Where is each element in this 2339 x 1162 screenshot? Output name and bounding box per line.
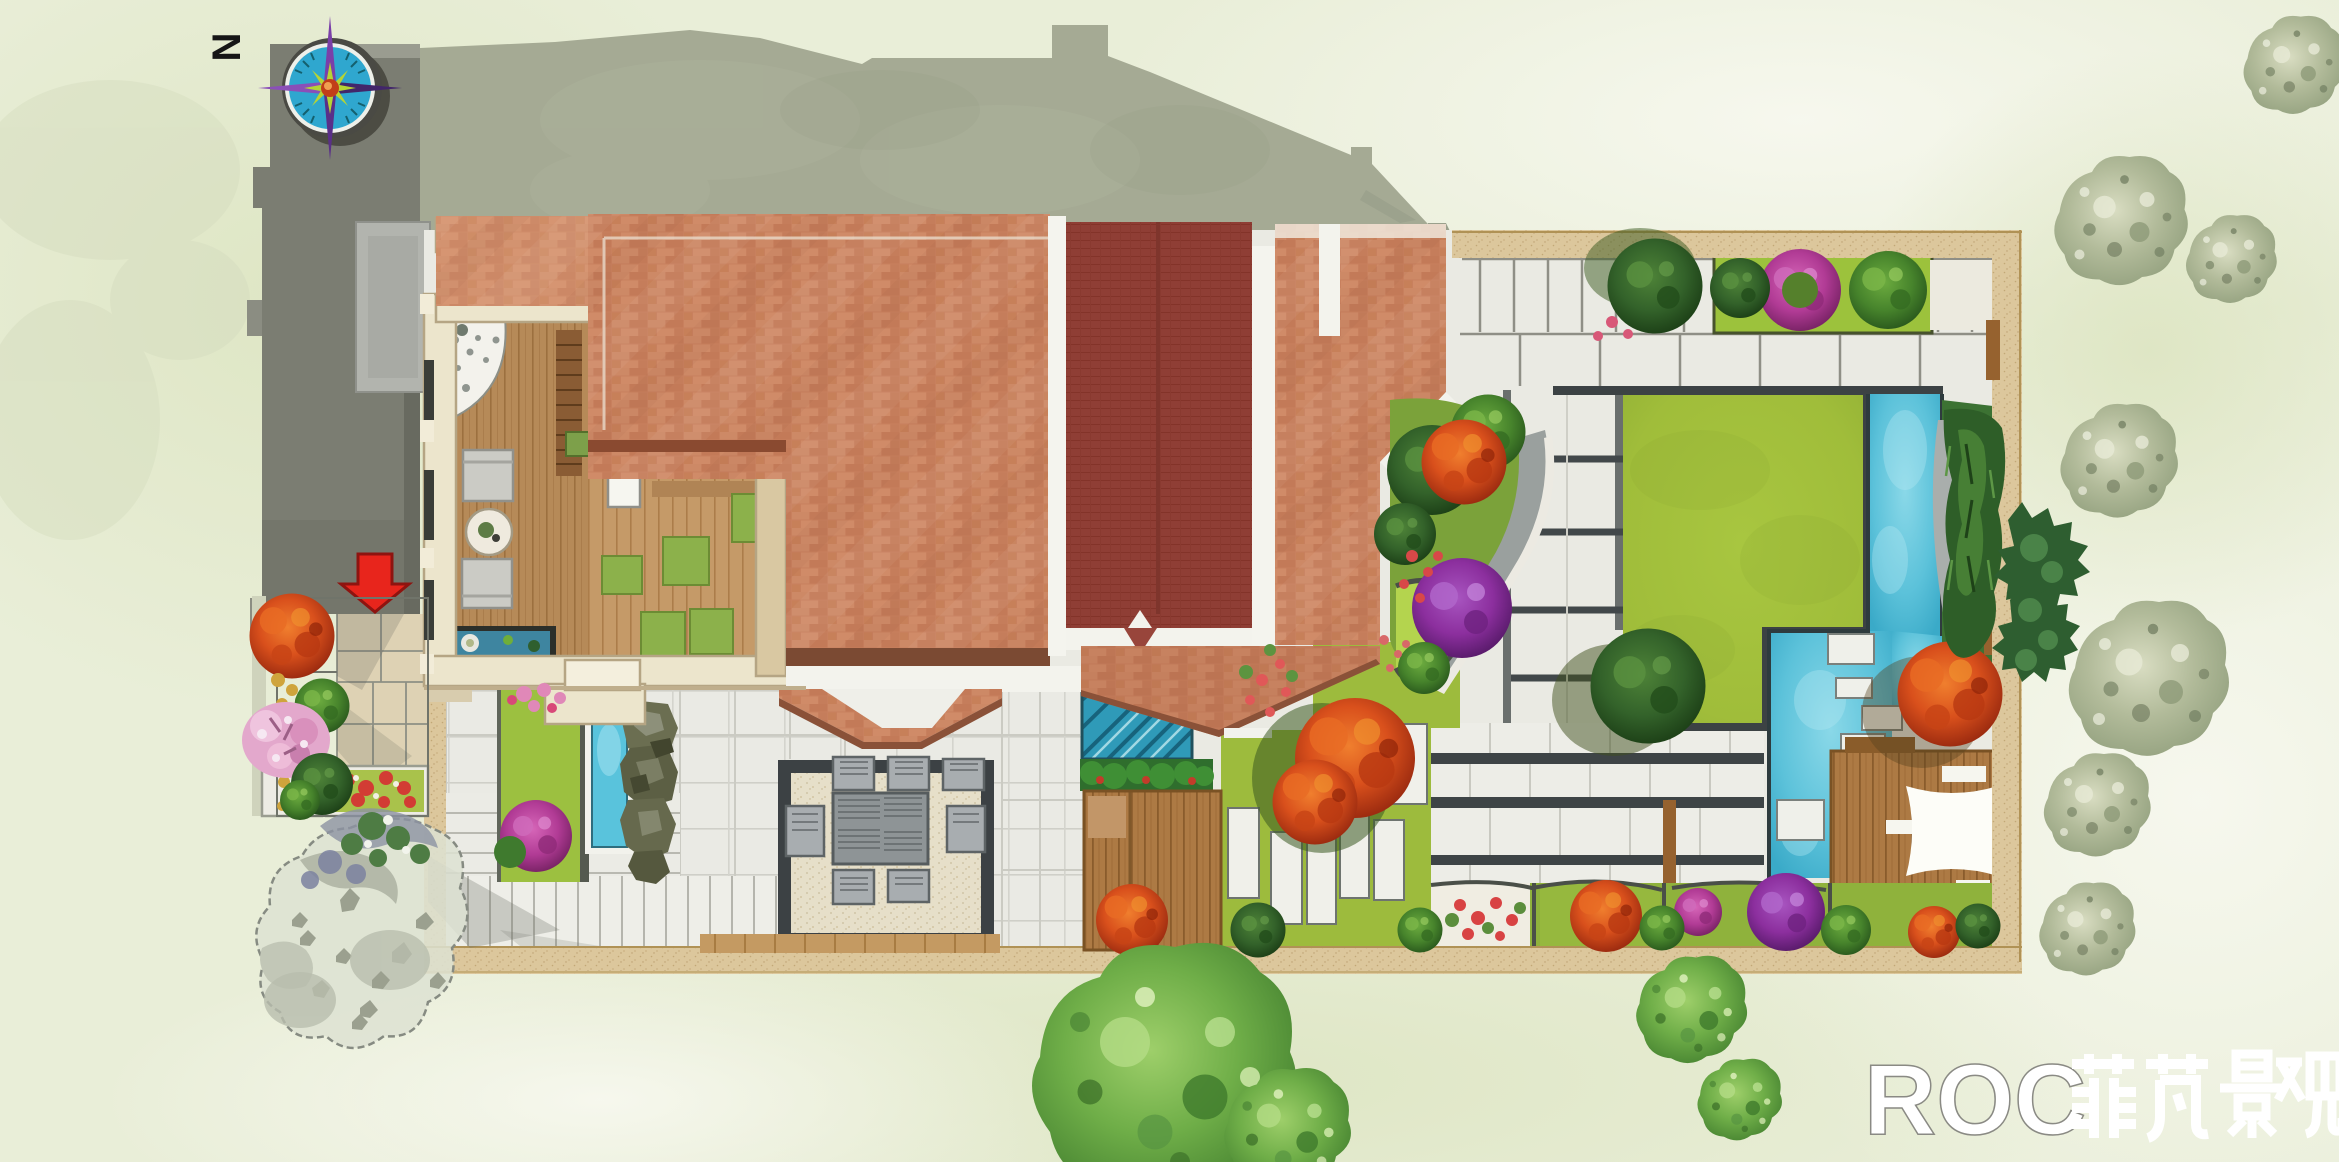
svg-text:ROC: ROC: [1864, 1044, 2086, 1156]
svg-text:N: N: [205, 33, 249, 62]
